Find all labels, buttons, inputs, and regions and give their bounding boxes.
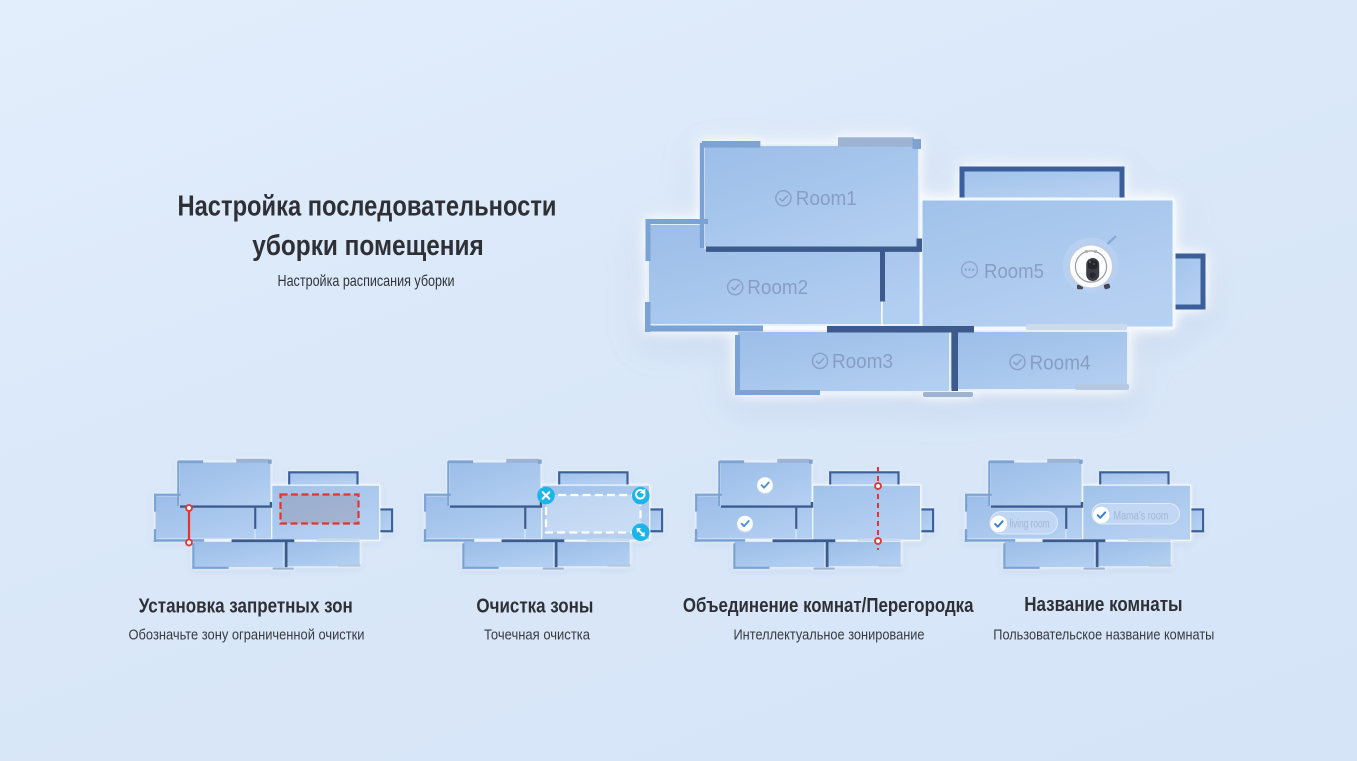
svg-text:living room: living room xyxy=(1010,519,1050,531)
svg-text:Объединение комнат/Перегородка: Объединение комнат/Перегородка xyxy=(683,594,974,617)
svg-text:Очистка зоны: Очистка зоны xyxy=(476,595,593,618)
svg-text:Обозначьте зону ограниченной о: Обозначьте зону ограниченной очистки xyxy=(129,627,365,644)
svg-text:Room1: Room1 xyxy=(796,188,857,210)
svg-text:Пользовательское название комн: Пользовательское название комнаты xyxy=(993,627,1214,644)
svg-text:Mama's room: Mama's room xyxy=(1114,510,1169,522)
svg-text:Название комнаты: Название комнаты xyxy=(1024,593,1182,616)
svg-text:Room2: Room2 xyxy=(747,277,808,299)
svg-text:Интеллектуальное зонирование: Интеллектуальное зонирование xyxy=(734,627,925,644)
svg-text:Room4: Room4 xyxy=(1030,352,1091,374)
svg-text:уборки помещения: уборки помещения xyxy=(252,230,484,262)
svg-text:Room5: Room5 xyxy=(984,261,1044,283)
svg-text:Точечная очистка: Точечная очистка xyxy=(484,627,591,644)
svg-text:Настройка расписания уборки: Настройка расписания уборки xyxy=(278,273,455,290)
svg-text:Room3: Room3 xyxy=(832,351,893,373)
svg-text:Установка запретных зон: Установка запретных зон xyxy=(139,595,353,618)
svg-text:Настройка последовательности: Настройка последовательности xyxy=(178,190,557,222)
